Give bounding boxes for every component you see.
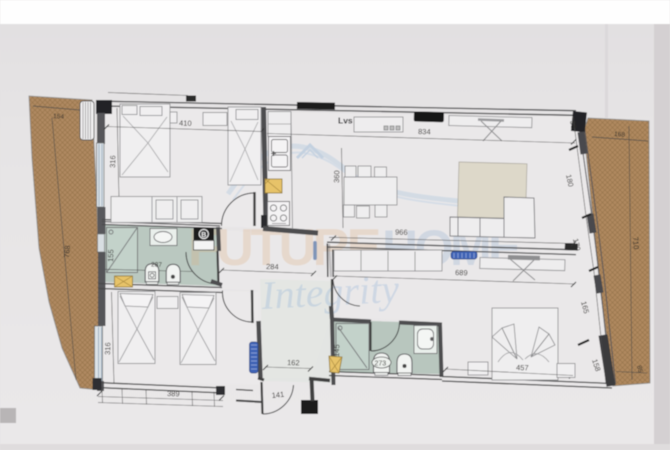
svg-text:360: 360: [332, 170, 341, 183]
svg-text:389: 389: [167, 389, 180, 398]
svg-text:Lvs: Lvs: [338, 116, 353, 126]
svg-text:162: 162: [287, 358, 300, 367]
svg-text:168: 168: [614, 131, 626, 139]
svg-text:284: 284: [266, 262, 279, 271]
svg-text:966: 966: [395, 228, 408, 237]
svg-text:710: 710: [631, 237, 641, 250]
svg-text:768: 768: [62, 245, 72, 258]
svg-text:273: 273: [375, 361, 387, 368]
svg-text:141: 141: [271, 390, 284, 400]
svg-text:B: B: [201, 232, 206, 239]
svg-text:689: 689: [455, 268, 468, 277]
svg-text:834: 834: [418, 127, 431, 136]
svg-text:316: 316: [103, 342, 112, 355]
svg-text:154: 154: [53, 113, 65, 121]
svg-text:55: 55: [568, 120, 578, 130]
svg-text:316: 316: [108, 155, 117, 168]
svg-text:287: 287: [151, 262, 162, 269]
svg-text:145: 145: [332, 344, 341, 357]
svg-text:457: 457: [516, 363, 529, 372]
svg-text:410: 410: [179, 119, 192, 128]
svg-text:155: 155: [106, 249, 115, 262]
